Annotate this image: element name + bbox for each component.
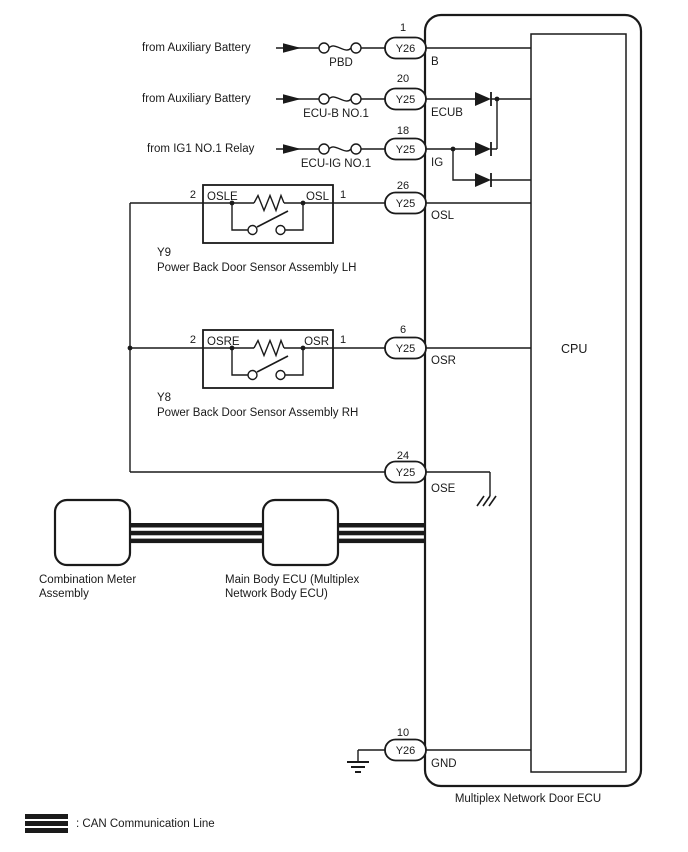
pin-number: 10 bbox=[397, 727, 409, 739]
sensor-terminal-left: OSLE bbox=[207, 191, 238, 203]
switch-icon bbox=[232, 348, 303, 380]
multiplex-door-ecu-box bbox=[425, 15, 641, 786]
sensor-code: Y8 bbox=[157, 392, 171, 404]
cpu-box bbox=[531, 34, 626, 772]
power-row-ecub: from Auxiliary Battery ECU-B NO.1 20 Y25… bbox=[142, 73, 531, 120]
cpu-label: CPU bbox=[561, 342, 587, 356]
pin-number: 20 bbox=[397, 73, 409, 85]
resistor-icon bbox=[254, 341, 284, 356]
sensor-name: Power Back Door Sensor Assembly RH bbox=[157, 407, 358, 419]
feed-arrow-icon bbox=[283, 94, 301, 104]
sensor-code: Y9 bbox=[157, 247, 171, 259]
terminal-label: GND bbox=[431, 758, 457, 770]
legend-label: : CAN Communication Line bbox=[76, 818, 215, 830]
diode-icon bbox=[475, 173, 491, 187]
wiring-diagram-page: CPU Multiplex Network Door ECU from Auxi… bbox=[0, 0, 688, 852]
node-label-line1: Combination Meter bbox=[39, 574, 136, 586]
switch-icon bbox=[232, 203, 303, 235]
sensor-y8: OSRE OSR 2 1 Y8 Power Back Door Sensor A… bbox=[130, 324, 531, 419]
junction-dot bbox=[451, 147, 456, 152]
sensor-pin-right: 1 bbox=[340, 189, 346, 201]
can-node-main-body-ecu: Main Body ECU (Multiplex Network Body EC… bbox=[225, 500, 359, 600]
resistor-icon bbox=[254, 196, 284, 211]
chassis-ground-icon bbox=[477, 496, 496, 506]
sensor-terminal-left: OSRE bbox=[207, 336, 240, 348]
source-label: from Auxiliary Battery bbox=[142, 42, 251, 54]
diode-icon bbox=[475, 92, 491, 106]
connector-label: Y26 bbox=[396, 745, 416, 757]
can-line-icon bbox=[25, 814, 68, 833]
fuse-label: ECU-IG NO.1 bbox=[301, 158, 371, 170]
sensor-name: Power Back Door Sensor Assembly LH bbox=[157, 262, 356, 274]
ose-row: 24 Y25 OSE bbox=[130, 450, 496, 506]
sensor-terminal-right: OSL bbox=[306, 191, 330, 203]
sensor-terminal-right: OSR bbox=[304, 336, 329, 348]
connector-label: Y25 bbox=[396, 144, 416, 156]
connector-label: Y25 bbox=[396, 343, 416, 355]
pin-number: 18 bbox=[397, 125, 409, 137]
fuse-label: ECU-B NO.1 bbox=[303, 108, 369, 120]
source-label: from IG1 NO.1 Relay bbox=[147, 143, 255, 155]
sensor-pin-left: 2 bbox=[190, 189, 196, 201]
source-label: from Auxiliary Battery bbox=[142, 93, 251, 105]
node-box bbox=[263, 500, 338, 565]
feed-arrow-icon bbox=[283, 144, 301, 154]
fuse-label: PBD bbox=[329, 57, 353, 69]
terminal-label: ECUB bbox=[431, 107, 463, 119]
pin-number: 6 bbox=[400, 324, 406, 336]
sensor-pin-right: 1 bbox=[340, 334, 346, 346]
feed-arrow-icon bbox=[283, 43, 301, 53]
terminal-label: OSR bbox=[431, 355, 456, 367]
sensor-pin-left: 2 bbox=[190, 334, 196, 346]
power-row-b: from Auxiliary Battery PBD 1 Y26 B bbox=[142, 22, 531, 69]
sensor-y9: OSLE OSL 2 1 Y9 Power Back Door Sensor A… bbox=[130, 180, 531, 274]
connector-label: Y25 bbox=[396, 94, 416, 106]
ecu-label: Multiplex Network Door ECU bbox=[455, 793, 601, 805]
diode-icon bbox=[475, 142, 491, 156]
wiring-diagram-canvas: CPU Multiplex Network Door ECU from Auxi… bbox=[0, 0, 688, 852]
earth-ground-icon bbox=[347, 750, 369, 772]
legend: : CAN Communication Line bbox=[25, 814, 215, 833]
connector-label: Y25 bbox=[396, 467, 416, 479]
node-label-line2: Assembly bbox=[39, 588, 89, 600]
pin-number: 1 bbox=[400, 22, 406, 34]
terminal-label: OSE bbox=[431, 483, 456, 495]
terminal-label: B bbox=[431, 56, 439, 68]
terminal-label: OSL bbox=[431, 210, 455, 222]
connector-label: Y26 bbox=[396, 43, 416, 55]
node-label-line2: Network Body ECU) bbox=[225, 588, 328, 600]
pin-number: 26 bbox=[397, 180, 409, 192]
connector-label: Y25 bbox=[396, 198, 416, 210]
node-label-line1: Main Body ECU (Multiplex bbox=[225, 574, 359, 586]
can-node-combination-meter: Combination Meter Assembly bbox=[39, 500, 136, 600]
can-bus-lines bbox=[130, 523, 425, 543]
node-box bbox=[55, 500, 130, 565]
pin-number: 24 bbox=[397, 450, 409, 462]
terminal-label: IG bbox=[431, 157, 443, 169]
gnd-row: 10 Y26 GND bbox=[347, 727, 531, 772]
